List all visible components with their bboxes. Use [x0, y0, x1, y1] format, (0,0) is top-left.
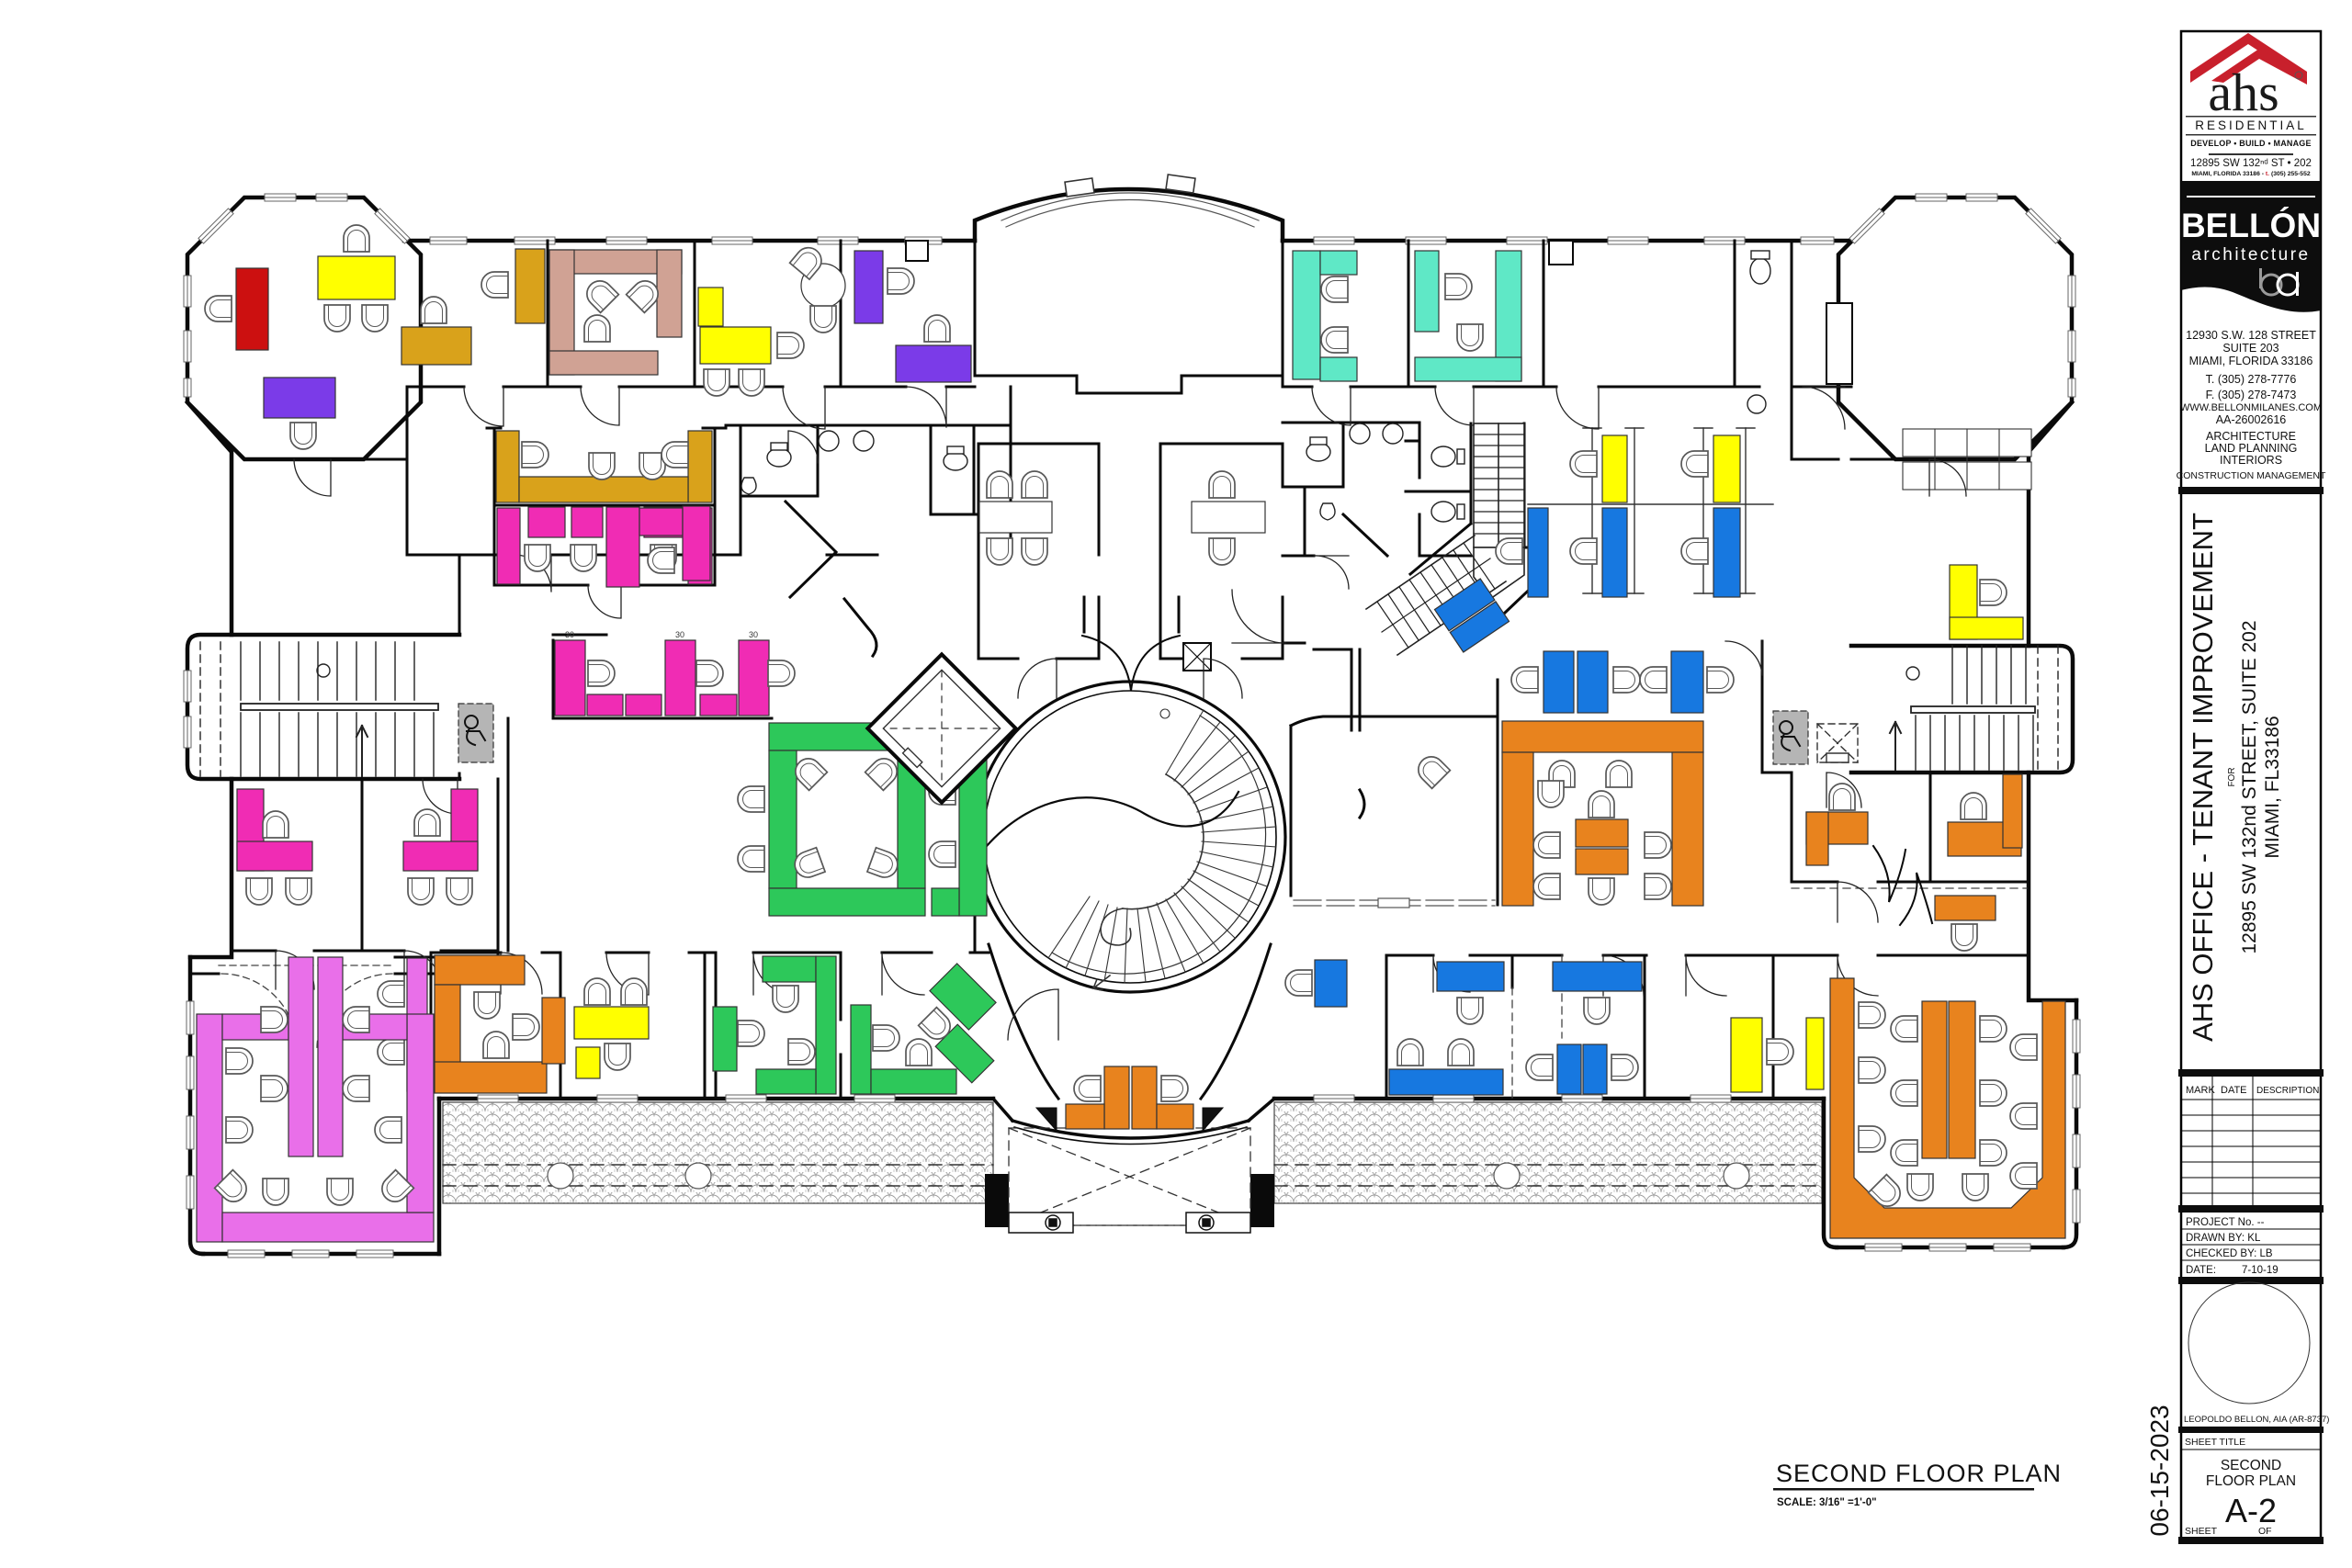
svg-text:ARCHITECTURE: ARCHITECTURE: [2206, 430, 2296, 443]
svg-text:OF: OF: [2258, 1526, 2272, 1537]
svg-text:AHS OFFICE - TENANT IMPROVEMEN: AHS OFFICE - TENANT IMPROVEMENT: [2187, 513, 2219, 1042]
svg-text:SHEET: SHEET: [2185, 1526, 2218, 1537]
svg-text:BELLÓN: BELLÓN: [2181, 206, 2321, 244]
svg-text:30: 30: [749, 630, 758, 639]
svg-text:A-2: A-2: [2225, 1492, 2277, 1529]
svg-text:CONSTRUCTION MANAGEMENT: CONSTRUCTION MANAGEMENT: [2177, 470, 2326, 481]
svg-text:MIAMI, FLORIDA 33186 - t. (305: MIAMI, FLORIDA 33186 - t. (305) 255-552: [2191, 171, 2311, 177]
svg-text:T. (305) 278-7776: T. (305) 278-7776: [2206, 373, 2297, 386]
svg-text:7-10-19: 7-10-19: [2242, 1265, 2278, 1276]
svg-text:12895 SW 132nd STREET, SUITE 2: 12895 SW 132nd STREET, SUITE 202: [2239, 620, 2260, 953]
svg-text:DEVELOP • BUILD • MANAGE: DEVELOP • BUILD • MANAGE: [2190, 139, 2311, 148]
svg-text:MARK: MARK: [2186, 1085, 2215, 1096]
svg-text:SUITE 203: SUITE 203: [2222, 342, 2278, 355]
svg-text:INTERIORS: INTERIORS: [2220, 454, 2282, 467]
svg-text:F. (305) 278-7473: F. (305) 278-7473: [2206, 389, 2297, 401]
svg-text:30: 30: [565, 630, 574, 639]
svg-text:architecture: architecture: [2191, 245, 2310, 265]
svg-text:MIAMI, FL33186: MIAMI, FL33186: [2262, 716, 2283, 858]
svg-text:DESCRIPTION: DESCRIPTION: [2256, 1086, 2319, 1096]
svg-text:MIAMI, FLORIDA 33186: MIAMI, FLORIDA 33186: [2189, 355, 2313, 367]
svg-text:SECOND FLOOR PLAN: SECOND FLOOR PLAN: [1776, 1460, 2062, 1487]
svg-text:06-15-2023: 06-15-2023: [2145, 1404, 2174, 1536]
svg-text:DATE:: DATE:: [2186, 1265, 2216, 1276]
svg-text:RESIDENTIAL: RESIDENTIAL: [2195, 118, 2307, 132]
svg-text:ahs: ahs: [2208, 62, 2278, 122]
svg-text:DATE: DATE: [2221, 1085, 2247, 1096]
svg-text:CHECKED BY: LB: CHECKED BY: LB: [2186, 1248, 2273, 1259]
svg-text:LAND PLANNING: LAND PLANNING: [2205, 442, 2298, 455]
svg-text:SCALE: 3/16" =1'-0": SCALE: 3/16" =1'-0": [1777, 1497, 1877, 1508]
svg-text:DRAWN BY: KL: DRAWN BY: KL: [2186, 1233, 2261, 1244]
svg-text:LEOPOLDO BELLON, AIA (AR-8737): LEOPOLDO BELLON, AIA (AR-8737): [2184, 1415, 2329, 1425]
svg-text:30: 30: [675, 630, 684, 639]
svg-text:FOR: FOR: [2227, 767, 2237, 786]
svg-text:PROJECT No. --: PROJECT No. --: [2186, 1217, 2265, 1228]
svg-text:AA-26002616: AA-26002616: [2216, 413, 2287, 426]
svg-text:SECOND: SECOND: [2221, 1458, 2281, 1473]
svg-text:FLOOR PLAN: FLOOR PLAN: [2206, 1473, 2296, 1489]
svg-text:12895 SW 132ⁿᵈ ST • 202: 12895 SW 132ⁿᵈ ST • 202: [2190, 158, 2312, 169]
svg-text:12930 S.W. 128 STREET: 12930 S.W. 128 STREET: [2186, 329, 2316, 342]
svg-text:SHEET TITLE: SHEET TITLE: [2185, 1437, 2245, 1448]
svg-text:WWW.BELLONMILANES.COM: WWW.BELLONMILANES.COM: [2180, 402, 2322, 413]
